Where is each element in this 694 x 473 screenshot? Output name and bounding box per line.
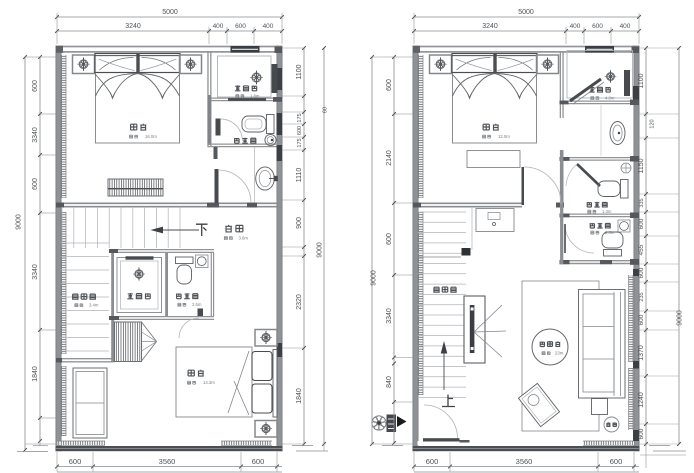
svg-text:600: 600 <box>426 457 439 466</box>
svg-text:9000: 9000 <box>371 270 378 286</box>
svg-text:9000: 9000 <box>16 214 23 230</box>
svg-text:120: 120 <box>650 119 656 128</box>
svg-text:400: 400 <box>263 23 274 30</box>
svg-text:5000: 5000 <box>518 9 534 16</box>
svg-text:1.3m: 1.3m <box>602 209 612 214</box>
svg-text:3.6m: 3.6m <box>238 236 248 241</box>
svg-text:235: 235 <box>639 292 645 301</box>
svg-text:9000: 9000 <box>677 310 684 326</box>
svg-text:5000: 5000 <box>162 9 178 16</box>
svg-text:1840: 1840 <box>296 388 303 404</box>
svg-text:16.0m: 16.0m <box>145 134 157 139</box>
svg-text:175: 175 <box>297 113 303 122</box>
svg-text:600: 600 <box>638 218 645 229</box>
svg-text:1100: 1100 <box>296 64 303 79</box>
svg-text:3.4m: 3.4m <box>89 303 99 308</box>
svg-text:3240: 3240 <box>125 23 141 30</box>
svg-text:900: 900 <box>296 217 303 229</box>
svg-text:455: 455 <box>638 244 645 255</box>
svg-text:600: 600 <box>252 457 265 466</box>
svg-text:600: 600 <box>32 80 39 92</box>
svg-text:335: 335 <box>639 198 645 207</box>
svg-text:14.3m: 14.3m <box>203 380 215 385</box>
svg-text:600: 600 <box>69 457 82 466</box>
svg-text:1240: 1240 <box>638 392 645 408</box>
svg-text:600: 600 <box>592 23 603 30</box>
svg-text:400: 400 <box>620 23 631 30</box>
svg-text:2140: 2140 <box>386 150 393 166</box>
svg-text:1150: 1150 <box>638 158 645 173</box>
svg-text:600: 600 <box>297 126 303 135</box>
svg-text:600: 600 <box>638 267 645 278</box>
svg-text:400: 400 <box>570 23 581 30</box>
svg-text:3560: 3560 <box>516 457 533 466</box>
svg-text:2320: 2320 <box>296 294 303 310</box>
svg-text:1110: 1110 <box>296 168 303 183</box>
svg-text:175: 175 <box>297 138 303 147</box>
svg-text:12.0m: 12.0m <box>498 134 510 139</box>
svg-text:600: 600 <box>610 457 623 466</box>
svg-text:600: 600 <box>638 428 645 439</box>
svg-text:600: 600 <box>235 23 246 30</box>
svg-text:400: 400 <box>213 23 224 30</box>
svg-text:1.8m: 1.8m <box>250 94 260 99</box>
svg-text:3340: 3340 <box>32 127 39 143</box>
svg-text:60: 60 <box>323 107 329 113</box>
svg-text:600: 600 <box>32 178 39 190</box>
svg-text:4.0m: 4.0m <box>605 96 615 101</box>
svg-text:3560: 3560 <box>159 457 176 466</box>
svg-text:1100: 1100 <box>638 73 645 88</box>
svg-text:3240: 3240 <box>482 23 498 30</box>
svg-text:600: 600 <box>386 79 393 91</box>
svg-text:23m: 23m <box>555 351 564 356</box>
svg-text:1370: 1370 <box>638 345 645 361</box>
svg-text:3340: 3340 <box>386 308 393 324</box>
svg-text:840: 840 <box>386 376 393 388</box>
svg-text:3340: 3340 <box>32 264 39 280</box>
svg-text:1840: 1840 <box>32 366 39 382</box>
svg-text:600: 600 <box>638 314 645 325</box>
svg-text:600: 600 <box>386 233 393 245</box>
svg-text:2.6m: 2.6m <box>192 302 202 307</box>
svg-text:9000: 9000 <box>317 242 324 258</box>
